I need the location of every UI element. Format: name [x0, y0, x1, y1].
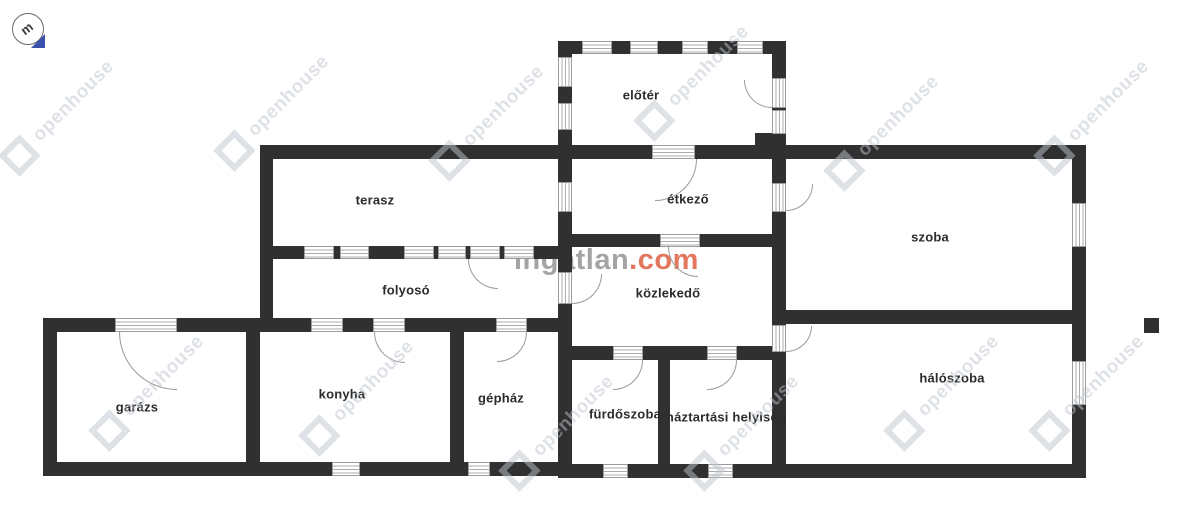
window-opening — [404, 246, 434, 259]
wall — [772, 310, 1086, 324]
wall — [558, 464, 1086, 478]
room-label-haloszoba: hálószoba — [919, 371, 984, 386]
wall — [260, 145, 273, 332]
window-opening — [311, 318, 343, 332]
window-opening — [603, 464, 628, 478]
door-arc — [707, 360, 737, 390]
compass-icon: m — [12, 13, 46, 47]
wall — [1144, 318, 1159, 333]
door-arc — [572, 274, 602, 304]
agency-watermark: openhouse — [633, 18, 757, 142]
window-opening — [304, 246, 334, 259]
window-opening — [468, 462, 490, 476]
window-opening — [772, 325, 786, 352]
agency-watermark-text: openhouse — [664, 21, 754, 111]
window-opening — [1072, 361, 1086, 405]
room-label-kozlekedo: közlekedő — [636, 286, 701, 301]
room-label-eloter: előtér — [623, 88, 660, 103]
window-opening — [558, 182, 572, 212]
window-opening — [340, 246, 369, 259]
door-arc — [119, 332, 177, 390]
room-label-garazs: garázs — [116, 400, 158, 415]
door-arc — [786, 184, 813, 211]
window-opening — [496, 318, 527, 332]
agency-logo-diamond-icon — [298, 414, 340, 456]
window-opening — [613, 346, 643, 360]
window-opening — [332, 462, 360, 476]
wall — [450, 332, 464, 476]
agency-watermark: openhouse — [883, 328, 1007, 452]
agency-watermark-text: openhouse — [1064, 56, 1154, 146]
agency-watermark-text: openhouse — [459, 61, 549, 151]
window-opening — [682, 41, 708, 54]
room-label-terasz: terasz — [356, 193, 395, 208]
door-arc — [744, 80, 772, 108]
agency-watermark: openhouse — [0, 53, 122, 177]
window-opening — [558, 103, 572, 130]
window-opening — [772, 78, 786, 108]
room-label-furdoszoba: fürdőszoba — [589, 407, 661, 422]
window-opening — [772, 110, 786, 134]
window-opening — [558, 57, 572, 87]
room-label-gephaz: gépház — [478, 391, 524, 406]
wall — [43, 462, 572, 476]
room-label-folyoso: folyosó — [382, 283, 430, 298]
agency-watermark-text: openhouse — [29, 56, 119, 146]
window-opening — [1072, 203, 1086, 247]
agency-watermark: openhouse — [823, 68, 947, 192]
window-opening — [652, 145, 695, 159]
agency-watermark-text: openhouse — [329, 336, 419, 426]
room-label-szoba: szoba — [911, 230, 949, 245]
room-label-haztartasi: háztartási helyiség — [666, 410, 786, 425]
door-arc — [613, 360, 643, 390]
agency-watermark: openhouse — [1028, 328, 1152, 452]
window-opening — [737, 41, 763, 54]
wall — [43, 318, 57, 476]
window-opening — [772, 183, 786, 212]
room-label-etkezo: étkező — [667, 192, 709, 207]
agency-watermark: openhouse — [428, 58, 552, 182]
window-opening — [115, 318, 177, 332]
agency-logo-diamond-icon — [883, 409, 925, 451]
agency-logo-diamond-icon — [1028, 409, 1070, 451]
wall — [558, 346, 786, 360]
door-arc — [497, 332, 527, 362]
room-label-konyha: konyha — [319, 387, 366, 402]
window-opening — [470, 246, 500, 259]
window-opening — [438, 246, 466, 259]
window-opening — [708, 464, 733, 478]
door-arc — [786, 326, 812, 352]
agency-logo-diamond-icon — [213, 129, 255, 171]
window-opening — [630, 41, 658, 54]
window-opening — [707, 346, 737, 360]
floor-plan-canvas: m ingatlan.com előtér terasz étkező szob… — [0, 0, 1200, 523]
agency-watermark-text: openhouse — [244, 51, 334, 141]
door-arc — [468, 259, 498, 289]
window-opening — [373, 318, 405, 332]
window-opening — [582, 41, 612, 54]
window-opening — [558, 272, 572, 304]
agency-logo-diamond-icon — [0, 134, 41, 176]
agency-logo-diamond-icon — [633, 99, 675, 141]
window-opening — [504, 246, 534, 259]
door-arc — [374, 332, 405, 363]
agency-logo-diamond-icon — [88, 409, 130, 451]
wall — [246, 318, 260, 476]
window-opening — [660, 234, 700, 247]
